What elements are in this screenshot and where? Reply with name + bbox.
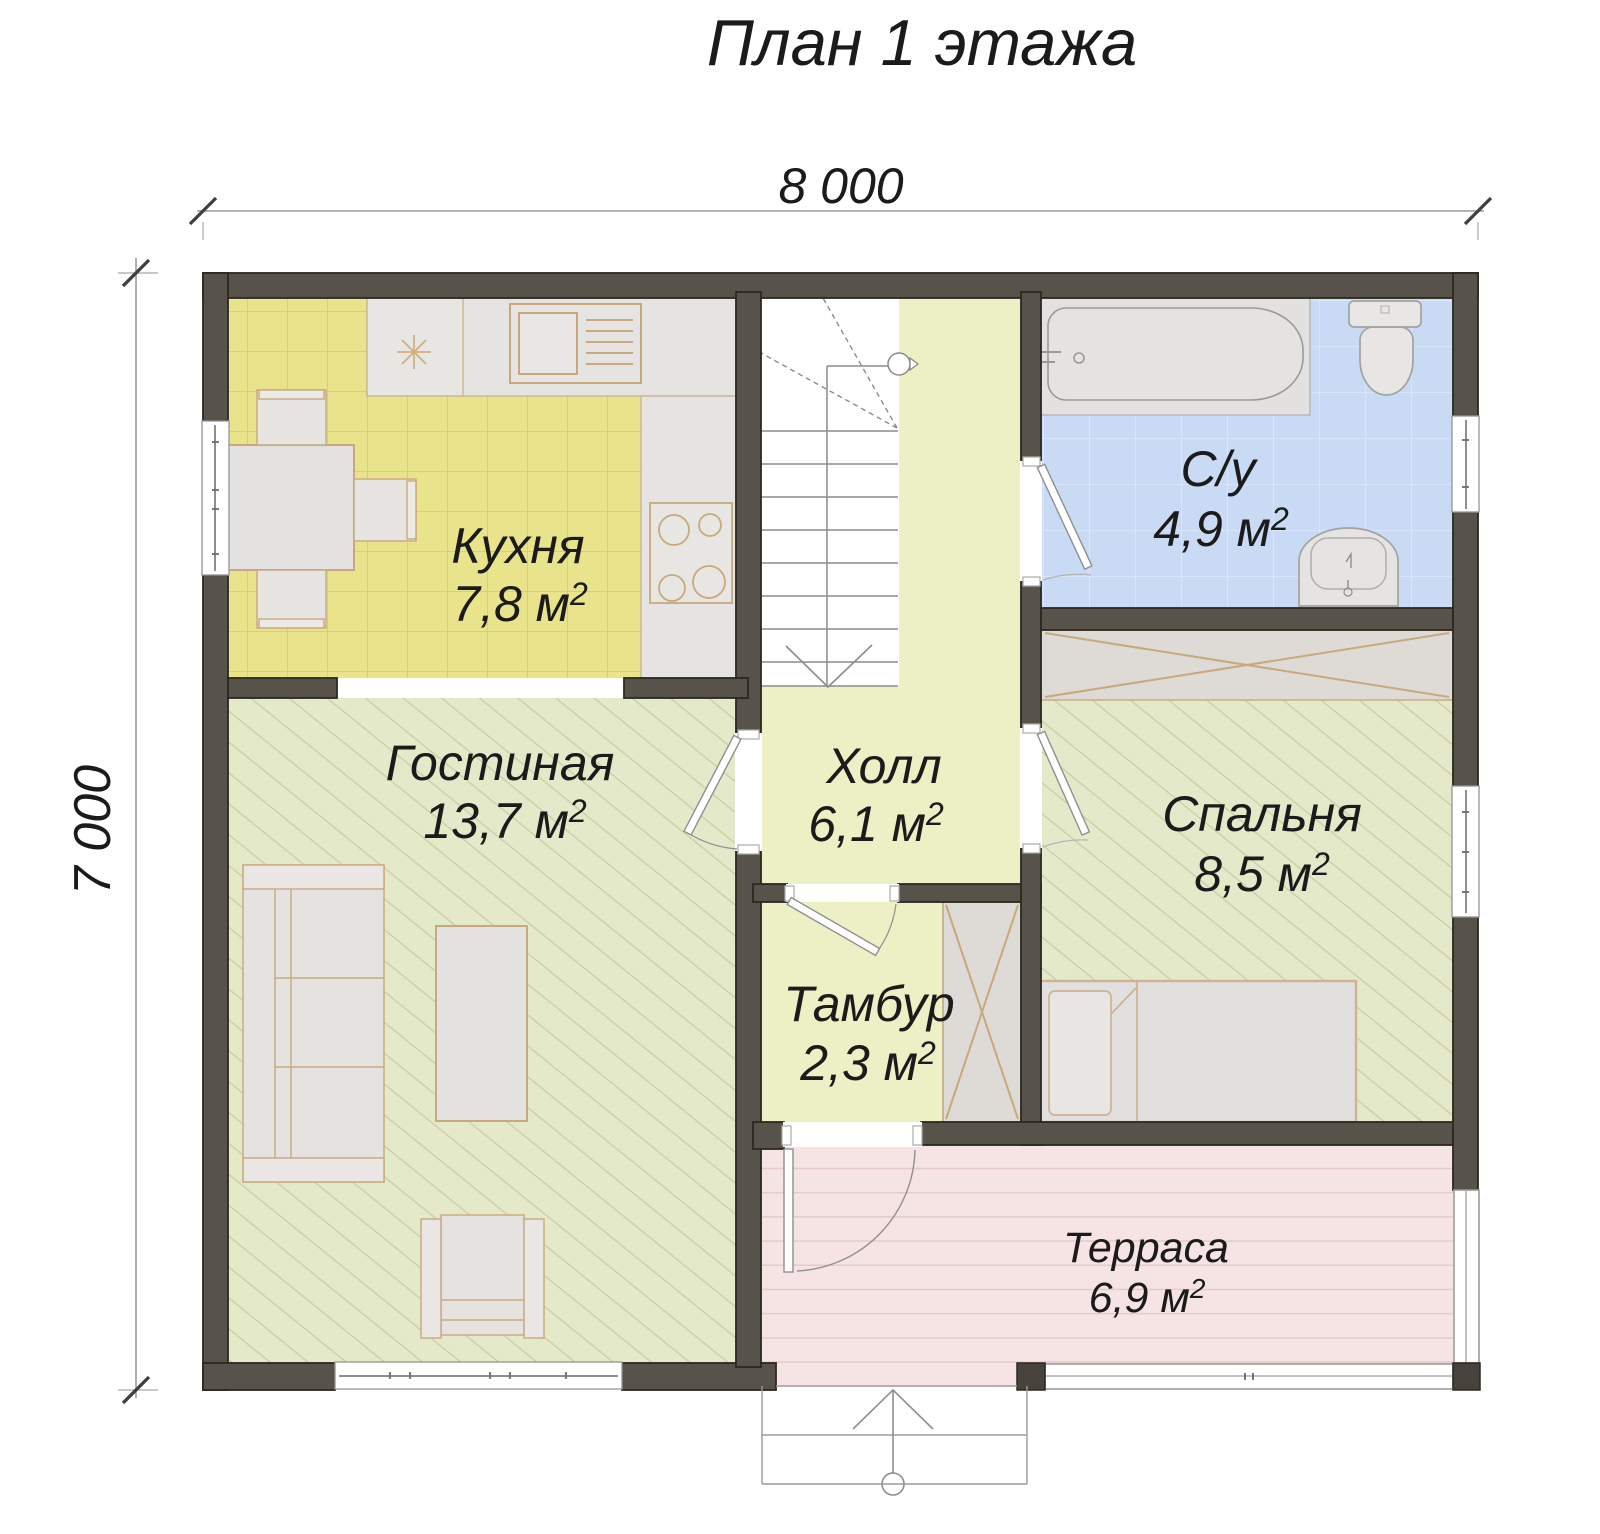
svg-text:4,9 м2: 4,9 м2	[1153, 501, 1289, 557]
svg-text:Кухня: Кухня	[451, 518, 584, 574]
svg-text:8 000: 8 000	[778, 158, 903, 214]
svg-text:С/у: С/у	[1181, 441, 1259, 497]
svg-text:7 000: 7 000	[64, 765, 122, 895]
svg-text:2,3 м2: 2,3 м2	[799, 1035, 936, 1091]
svg-text:7,8 м2: 7,8 м2	[452, 576, 588, 632]
svg-text:8,5 м2: 8,5 м2	[1194, 846, 1330, 902]
svg-text:Спальня: Спальня	[1162, 786, 1362, 842]
svg-text:13,7 м2: 13,7 м2	[423, 793, 586, 849]
svg-text:6,9 м2: 6,9 м2	[1089, 1273, 1206, 1322]
svg-text:Гостиная: Гостиная	[386, 735, 615, 791]
svg-text:6,1 м2: 6,1 м2	[808, 796, 944, 852]
svg-text:Терраса: Терраса	[1063, 1224, 1229, 1272]
svg-text:План 1 этажа: План 1 этажа	[707, 6, 1137, 79]
svg-text:Тамбур: Тамбур	[783, 976, 954, 1032]
svg-text:Холл: Холл	[825, 738, 941, 794]
